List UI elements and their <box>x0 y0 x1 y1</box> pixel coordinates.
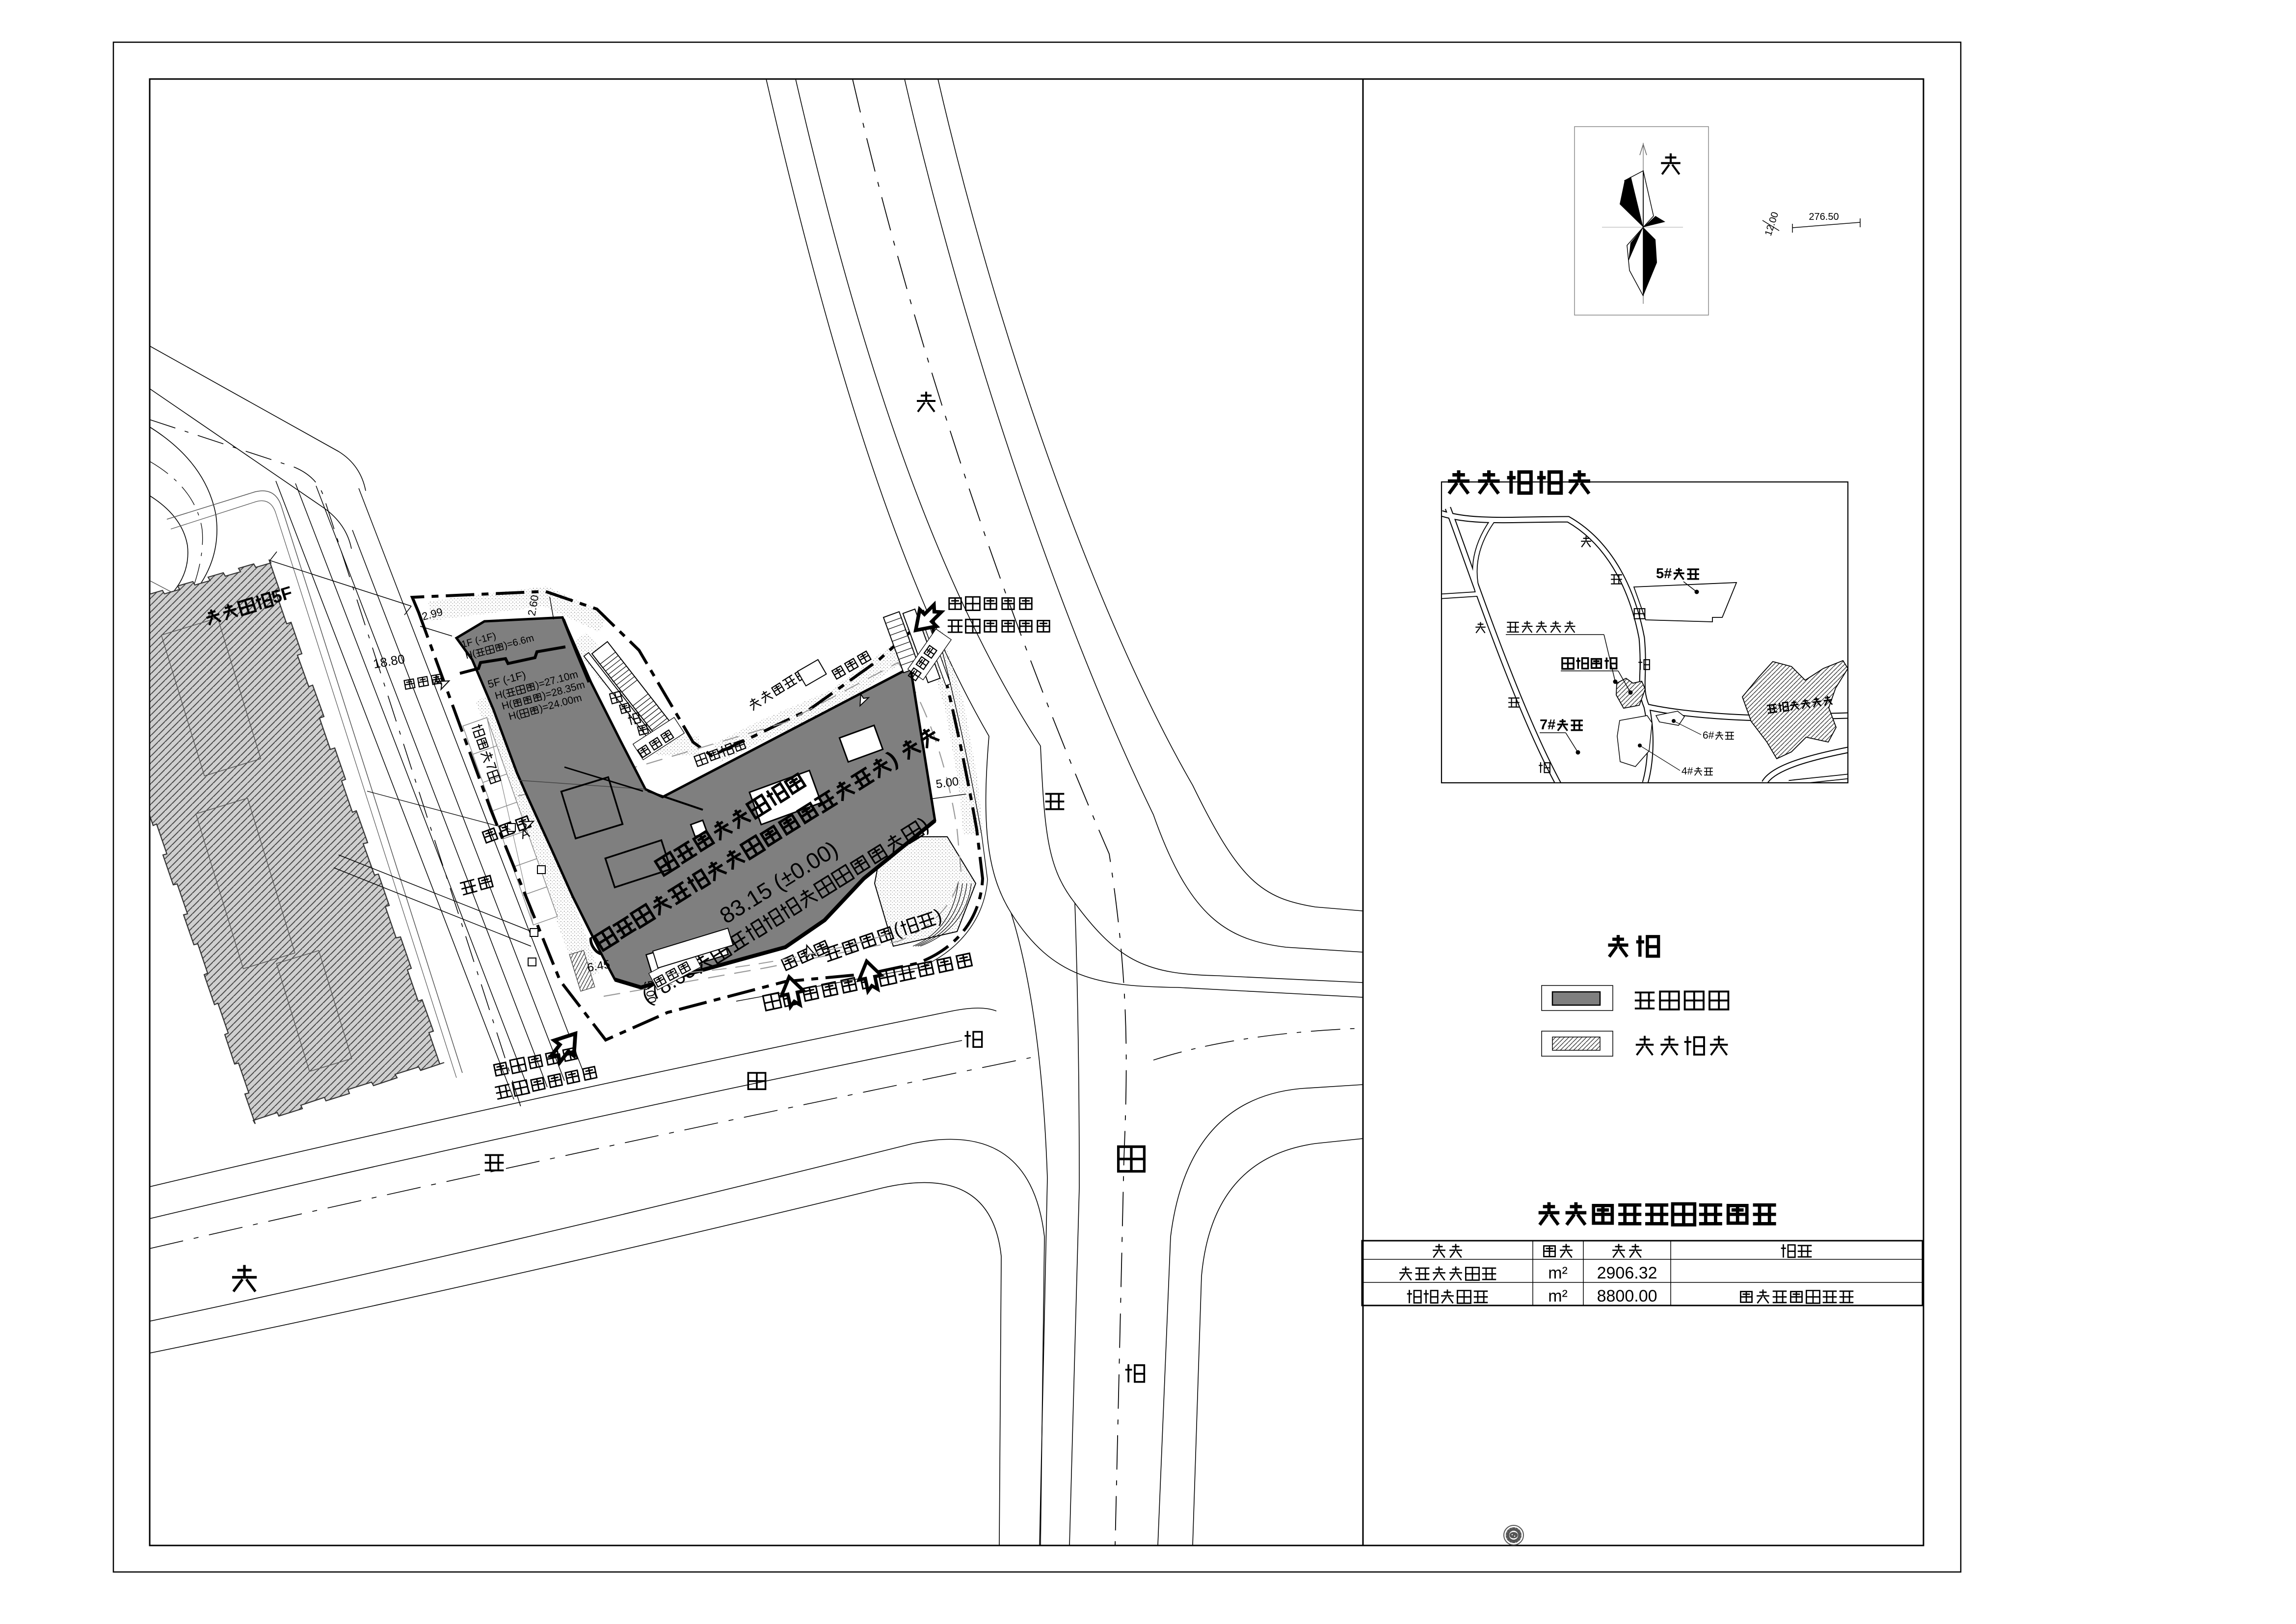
svg-text:6#: 6# <box>1703 730 1714 741</box>
svg-text:7#: 7# <box>1540 717 1555 733</box>
svg-text:m²: m² <box>1548 1287 1568 1305</box>
svg-text:8800.00: 8800.00 <box>1597 1287 1657 1305</box>
svg-text:4#: 4# <box>1682 766 1693 777</box>
svg-text:276.50: 276.50 <box>1809 212 1839 222</box>
svg-text:2906.32: 2906.32 <box>1597 1264 1657 1282</box>
svg-text:m²: m² <box>1548 1264 1568 1282</box>
svg-text:5#: 5# <box>1656 566 1672 582</box>
